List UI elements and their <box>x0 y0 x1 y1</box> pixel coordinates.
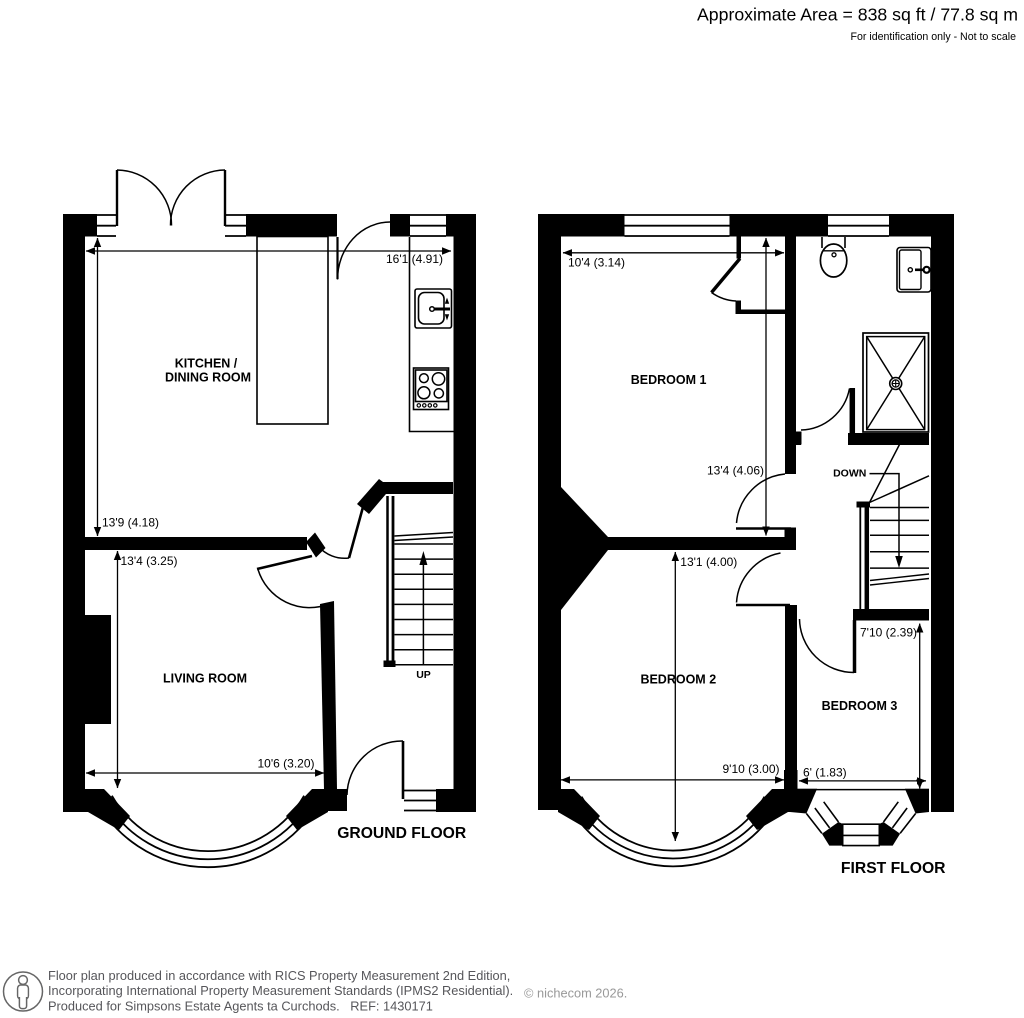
svg-text:7'10 (2.39): 7'10 (2.39) <box>860 626 917 640</box>
svg-text:LIVING ROOM: LIVING ROOM <box>163 672 247 686</box>
svg-text:UP: UP <box>416 669 431 681</box>
svg-text:DINING ROOM: DINING ROOM <box>165 371 251 385</box>
svg-text:DOWN: DOWN <box>833 467 866 479</box>
svg-text:BEDROOM 1: BEDROOM 1 <box>631 373 707 387</box>
svg-text:© nichecom 2026.: © nichecom 2026. <box>524 986 627 1001</box>
svg-text:13'9 (4.18): 13'9 (4.18) <box>102 516 159 530</box>
svg-text:13'1 (4.00): 13'1 (4.00) <box>680 555 737 569</box>
svg-text:13'4 (3.25): 13'4 (3.25) <box>121 554 178 568</box>
svg-text:For identification only - Not: For identification only - Not to scale <box>851 31 1017 43</box>
svg-text:Approximate Area = 838 sq ft /: Approximate Area = 838 sq ft / 77.8 sq m <box>697 5 1018 25</box>
svg-text:Incorporating International Pr: Incorporating International Property Mea… <box>48 983 513 998</box>
svg-text:13'4 (4.06): 13'4 (4.06) <box>707 464 764 478</box>
svg-text:9'10 (3.00): 9'10 (3.00) <box>723 762 780 776</box>
svg-text:GROUND FLOOR: GROUND FLOOR <box>337 825 466 842</box>
svg-text:10'4 (3.14): 10'4 (3.14) <box>568 255 625 269</box>
svg-text:Floor plan produced in accorda: Floor plan produced in accordance with R… <box>48 968 510 983</box>
svg-text:BEDROOM 3: BEDROOM 3 <box>822 699 898 713</box>
svg-text:10'6 (3.20): 10'6 (3.20) <box>258 757 315 771</box>
svg-text:Produced for Simpsons Estate A: Produced for Simpsons Estate Agents ta C… <box>48 998 433 1013</box>
svg-text:6' (1.83): 6' (1.83) <box>803 766 847 780</box>
svg-text:16'1 (4.91): 16'1 (4.91) <box>386 252 443 266</box>
svg-text:FIRST FLOOR: FIRST FLOOR <box>841 860 946 877</box>
svg-text:KITCHEN /: KITCHEN / <box>175 357 238 371</box>
svg-text:BEDROOM 2: BEDROOM 2 <box>640 673 716 687</box>
